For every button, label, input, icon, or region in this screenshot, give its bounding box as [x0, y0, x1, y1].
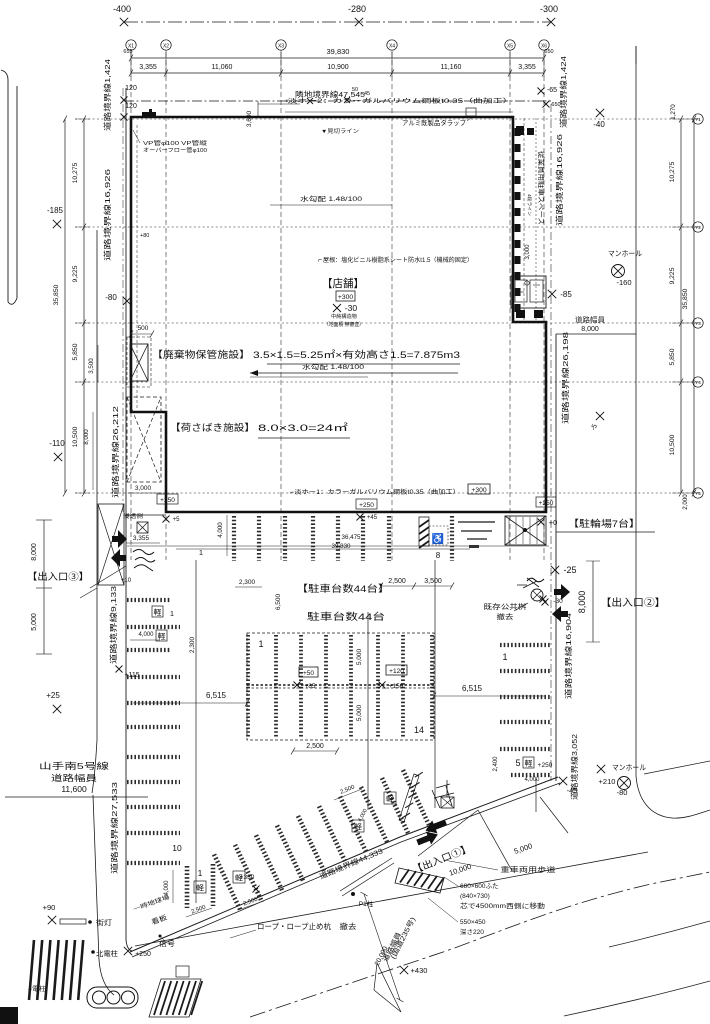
svg-text:+5: +5 [173, 517, 181, 523]
svg-text:3,600: 3,600 [246, 110, 253, 127]
svg-text:+50: +50 [303, 670, 314, 677]
svg-text:重車両用歩道: 重車両用歩道 [501, 865, 556, 874]
svg-text:5,850: 5,850 [72, 343, 79, 360]
svg-text:-45: -45 [567, 786, 578, 795]
svg-text:道路境界線16,926: 道路境界線16,926 [102, 169, 112, 261]
svg-text:Y3: Y3 [695, 321, 701, 326]
svg-text:▼見切ライン: ▼見切ライン [321, 128, 360, 135]
svg-text:1: 1 [258, 639, 263, 649]
svg-text:道路境界線26,212: 道路境界線26,212 [110, 406, 120, 498]
svg-text:3.5×1.5=5.25㎡×有効高さ1.5=7.875m3: 3.5×1.5=5.25㎡×有効高さ1.5=7.875m3 [253, 349, 460, 361]
svg-text:道路境界線1,424: 道路境界線1,424 [102, 59, 112, 131]
svg-text:+250: +250 [160, 497, 175, 504]
svg-text:+210: +210 [599, 777, 616, 786]
svg-text:+300: +300 [338, 294, 354, 301]
svg-text:北電柱: 北電柱 [96, 949, 118, 958]
svg-text:⌐淡ホー1：カラーガルバリウム鋼板t0.35（曲加工）: ⌐淡ホー1：カラーガルバリウム鋼板t0.35（曲加工） [290, 488, 460, 496]
svg-text:1: 1 [502, 652, 507, 662]
svg-text:+150: +150 [389, 683, 404, 690]
svg-text:軽: 軽 [386, 794, 394, 803]
svg-text:8: 8 [436, 551, 441, 560]
svg-text:5,000: 5,000 [356, 704, 363, 721]
svg-text:芯で4500mm西側に移動: 芯で4500mm西側に移動 [460, 901, 546, 910]
svg-text:120: 120 [125, 85, 137, 92]
svg-text:-185: -185 [47, 206, 64, 215]
svg-text:650: 650 [544, 49, 553, 55]
svg-text:+250: +250 [539, 500, 554, 507]
svg-text:4,000: 4,000 [217, 522, 224, 538]
svg-text:道路境界線9,133: 道路境界線9,133 [108, 586, 118, 664]
svg-text:道路境界線27,533: 道路境界線27,533 [109, 782, 119, 874]
svg-text:中純構造物: 中純構造物 [331, 313, 357, 320]
svg-text:39,830: 39,830 [327, 47, 350, 56]
svg-text:道路幅員: 道路幅員 [575, 315, 605, 324]
svg-text:VP管φ100 VP管縦: VP管φ100 VP管縦 [143, 139, 208, 147]
svg-text:39,830: 39,830 [332, 543, 351, 550]
svg-text:-110: -110 [49, 439, 65, 448]
svg-text:8,000: 8,000 [581, 326, 599, 333]
svg-text:11,600: 11,600 [61, 784, 87, 794]
svg-text:-300: -300 [540, 4, 558, 14]
svg-text:10: 10 [172, 843, 182, 853]
svg-text:オーバーフロー管φ100: オーバーフロー管φ100 [143, 146, 207, 154]
svg-text:撤去: 撤去 [497, 612, 514, 621]
svg-text:道路境界線26,198: 道路境界線26,198 [560, 332, 570, 424]
svg-text:1: 1 [198, 868, 203, 878]
svg-text:撤去: 撤去 [340, 921, 358, 931]
svg-text:（地面積 無審査）: （地面積 無審査） [324, 321, 364, 328]
svg-text:♿: ♿ [432, 532, 444, 545]
svg-text:4段ライン: 4段ライン [526, 194, 533, 217]
svg-text:6,515: 6,515 [462, 684, 483, 693]
svg-text:水勾配 1.48/100: 水勾配 1.48/100 [302, 362, 365, 371]
svg-text:+250: +250 [359, 502, 374, 509]
svg-text:屋根：塩化ビニル樹脂系シート防水t1.5（機械的固定）: 屋根：塩化ビニル樹脂系シート防水t1.5（機械的固定） [323, 256, 473, 264]
svg-text:8,000: 8,000 [577, 591, 587, 614]
svg-text:8,000: 8,000 [83, 429, 90, 445]
svg-text:35,850: 35,850 [53, 284, 60, 305]
svg-text:1: 1 [199, 548, 203, 557]
svg-text:道路境界線16,926: 道路境界線16,926 [554, 134, 564, 226]
svg-text:+0: +0 [549, 518, 558, 527]
svg-text:Y4: Y4 [695, 380, 701, 385]
svg-text:-65: -65 [547, 87, 557, 94]
svg-text:+430: +430 [411, 966, 428, 975]
svg-text:X2: X2 [163, 44, 169, 50]
svg-text:+115: +115 [124, 672, 139, 679]
svg-text:10,500: 10,500 [72, 426, 79, 447]
svg-text:1,270: 1,270 [670, 104, 677, 120]
svg-text:駐車台数44台: 駐車台数44台 [307, 611, 385, 623]
svg-text:【出入口③】: 【出入口③】 [27, 571, 89, 583]
svg-text:街灯: 街灯 [96, 918, 112, 927]
svg-text:550×450: 550×450 [460, 919, 486, 926]
svg-text:+25: +25 [46, 691, 60, 700]
svg-text:10,275: 10,275 [669, 161, 676, 182]
svg-text:軽: 軽 [154, 608, 162, 617]
svg-text:【店舗】: 【店舗】 [322, 276, 364, 290]
svg-text:マンホール: マンホール [608, 249, 642, 258]
svg-text:-400: -400 [113, 4, 131, 14]
svg-text:10,275: 10,275 [72, 162, 79, 183]
svg-text:-160: -160 [616, 278, 631, 287]
svg-text:軽: 軽 [158, 632, 166, 641]
svg-text:-30: -30 [553, 598, 563, 605]
svg-text:-85: -85 [560, 290, 572, 299]
svg-text:従業員用駐車スペース: 従業員用駐車スペース [537, 151, 546, 225]
svg-text:X3: X3 [278, 44, 284, 50]
svg-text:マンホール: マンホール [612, 763, 646, 772]
svg-text:-30: -30 [345, 303, 358, 313]
svg-text:2,400: 2,400 [493, 756, 499, 772]
svg-text:2,300: 2,300 [189, 636, 196, 653]
svg-text:5,000: 5,000 [31, 613, 38, 631]
svg-text:Y5: Y5 [695, 491, 701, 496]
svg-text:深さ220: 深さ220 [460, 927, 484, 936]
svg-text:50: 50 [352, 87, 358, 93]
svg-text:8,000: 8,000 [31, 543, 38, 561]
svg-text:アルミ既製品タラップ: アルミ既製品タラップ [402, 118, 466, 127]
svg-text:3,355: 3,355 [518, 64, 536, 71]
svg-text:-25: -25 [563, 565, 576, 575]
svg-text:5,000: 5,000 [356, 648, 363, 665]
svg-text:3,500: 3,500 [88, 358, 95, 374]
svg-text:+300: +300 [471, 487, 487, 494]
svg-text:120: 120 [125, 103, 137, 110]
svg-text:8.0×3.0=24㎡: 8.0×3.0=24㎡ [258, 423, 349, 434]
svg-text:【駐輪場7台】: 【駐輪場7台】 [568, 518, 640, 530]
svg-text:45: 45 [364, 91, 370, 97]
svg-text:2,000: 2,000 [682, 494, 689, 510]
svg-text:軽: 軽 [196, 883, 204, 892]
svg-text:道路幅員: 道路幅員 [51, 773, 98, 783]
svg-text:2,300: 2,300 [239, 579, 256, 586]
svg-text:-280: -280 [348, 4, 366, 14]
svg-text:6,500: 6,500 [275, 593, 282, 610]
svg-text:⌐: ⌐ [318, 257, 322, 264]
svg-text:35,850: 35,850 [682, 288, 689, 309]
svg-text:-40: -40 [593, 120, 605, 129]
svg-text:(840×730): (840×730) [460, 893, 490, 900]
svg-text:既存公共桝: 既存公共桝 [484, 602, 527, 611]
svg-text:道路境界線16,904: 道路境界線16,904 [563, 613, 573, 699]
svg-text:5,850: 5,850 [669, 348, 676, 365]
svg-text:3,000: 3,000 [525, 244, 531, 260]
svg-text:【駐車台数44台】: 【駐車台数44台】 [297, 583, 390, 595]
svg-text:+45: +45 [367, 515, 378, 521]
svg-text:軽: 軽 [354, 822, 362, 831]
svg-text:4,000: 4,000 [138, 632, 154, 638]
svg-text:X4: X4 [389, 44, 395, 50]
svg-text:680×600ふた: 680×600ふた [460, 882, 499, 890]
svg-text:14: 14 [414, 725, 424, 735]
svg-text:X5: X5 [507, 44, 513, 50]
svg-text:+10: +10 [121, 578, 132, 584]
svg-text:【出入口②】: 【出入口②】 [601, 596, 666, 609]
svg-text:+250: +250 [538, 762, 553, 769]
svg-text:36,475: 36,475 [342, 534, 361, 541]
svg-text:軽: 軽 [525, 759, 533, 768]
svg-text:+120: +120 [389, 668, 404, 675]
svg-text:【廃棄物保管施設】: 【廃棄物保管施設】 [152, 349, 250, 361]
svg-text:道路境界線1,424: 道路境界線1,424 [558, 56, 568, 128]
svg-text:+90: +90 [43, 903, 56, 912]
svg-text:2,500: 2,500 [388, 578, 406, 585]
svg-text:淡ホー2：カラーガルバリウム鋼板t0.35（曲加工）: 淡ホー2：カラーガルバリウム鋼板t0.35（曲加工） [288, 97, 513, 105]
svg-text:4,000: 4,000 [524, 777, 540, 783]
svg-text:Y2: Y2 [695, 225, 701, 230]
svg-text:3,355: 3,355 [133, 535, 150, 542]
svg-text:10,500: 10,500 [669, 434, 676, 455]
svg-text:-80: -80 [105, 293, 117, 302]
svg-text:⌐電柱: ⌐電柱 [28, 985, 46, 993]
svg-text:9,225: 9,225 [669, 267, 676, 284]
svg-text:2,500: 2,500 [306, 743, 324, 750]
svg-text:-80: -80 [617, 788, 628, 797]
svg-text:500: 500 [138, 325, 149, 332]
svg-text:3,355: 3,355 [139, 64, 157, 71]
svg-text:4,000: 4,000 [164, 880, 170, 896]
svg-text:3,000: 3,000 [135, 485, 152, 492]
svg-text:ロープ・ロープ止め杭: ロープ・ロープ止め杭 [257, 921, 331, 931]
svg-text:1: 1 [170, 609, 174, 618]
svg-text:+330: +330 [240, 874, 255, 881]
svg-text:水勾配 1.48/100: 水勾配 1.48/100 [300, 194, 363, 203]
svg-text:6,515: 6,515 [206, 691, 227, 700]
svg-text:10,900: 10,900 [327, 64, 349, 71]
svg-text:Y1: Y1 [695, 117, 701, 122]
svg-text:浸透側: 浸透側 [123, 512, 144, 520]
svg-text:11,160: 11,160 [441, 64, 462, 71]
svg-text:山手南5号線: 山手南5号線 [39, 761, 110, 771]
svg-text:3,500: 3,500 [424, 578, 442, 585]
svg-text:+80: +80 [140, 233, 149, 239]
svg-text:【荷さばき施設】: 【荷さばき施設】 [170, 422, 255, 434]
svg-text:650: 650 [551, 102, 560, 108]
svg-text:9,225: 9,225 [72, 265, 79, 282]
svg-text:+85: +85 [304, 683, 315, 690]
svg-text:11,060: 11,060 [212, 64, 233, 71]
svg-text:5: 5 [515, 758, 520, 768]
